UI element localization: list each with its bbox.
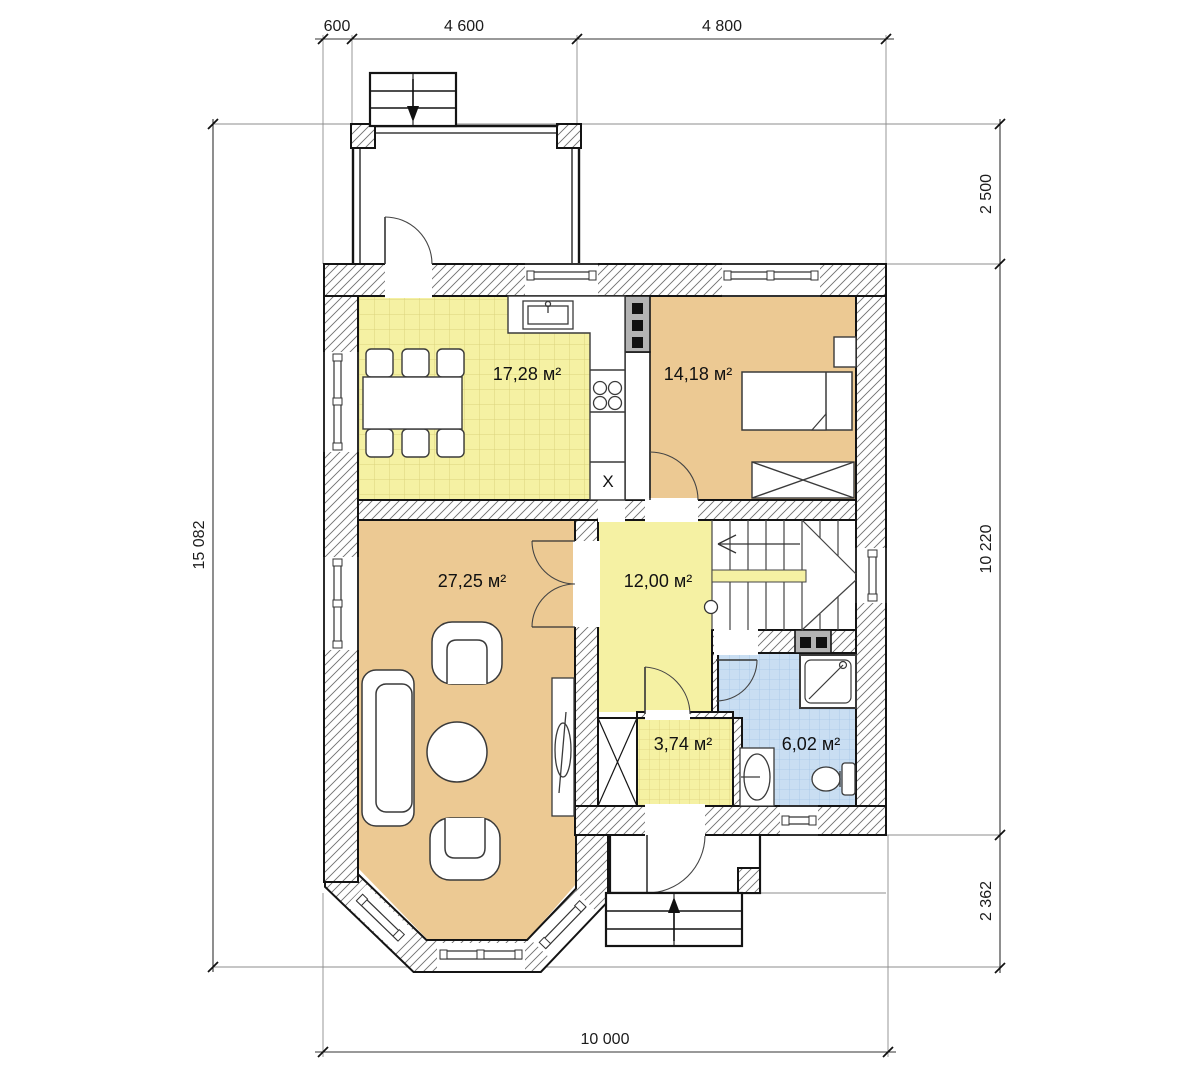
chair — [366, 429, 393, 457]
wall-bath-left — [712, 653, 718, 712]
hall-floor — [598, 520, 712, 712]
wall-kitchen-bedroom — [625, 352, 650, 500]
bathroom-area-label: 6,02 м² — [782, 734, 840, 754]
vestibule-floor — [637, 718, 733, 806]
dining-table — [363, 349, 464, 457]
kitchen-area-label: 17,28 м² — [493, 364, 561, 384]
hall-area-label: 12,00 м² — [624, 571, 692, 591]
dim-bottom-10000: 10 000 — [581, 1031, 630, 1048]
living-area-label: 27,25 м² — [438, 571, 506, 591]
wall-bottom — [575, 806, 886, 835]
dim-top-4800: 4 800 — [702, 18, 742, 35]
bedroom-area-label: 14,18 м² — [664, 364, 732, 384]
window-stairs-right — [855, 548, 887, 603]
window-kitchen-left — [323, 352, 359, 452]
sofa — [362, 670, 414, 826]
armchair-top — [432, 622, 502, 684]
vestibule-area-label: 3,74 м² — [654, 734, 712, 754]
window-kitchen-top — [525, 263, 598, 297]
chair — [366, 349, 393, 377]
wardrobe-bedroom — [752, 462, 854, 498]
newel-post — [705, 601, 718, 614]
window-bathroom-bottom — [780, 805, 818, 836]
dim-top-4600: 4 600 — [444, 18, 484, 35]
chimney-kitchen — [625, 296, 650, 352]
nightstand — [834, 337, 856, 367]
chair — [437, 349, 464, 377]
dim-left-15082: 15 082 — [191, 520, 208, 569]
opening-kitchen-hall — [598, 498, 625, 522]
tv-stand — [552, 678, 574, 816]
bed — [742, 372, 852, 430]
coffee-table — [427, 722, 487, 782]
chair — [402, 429, 429, 457]
floor-plan-svg: X — [0, 0, 1200, 1081]
shower — [800, 655, 856, 708]
window-living-left — [323, 557, 359, 650]
chimney-stairs — [795, 630, 831, 653]
chair — [402, 349, 429, 377]
floor-plan-page: X — [0, 0, 1200, 1081]
chair — [437, 429, 464, 457]
dim-right-2500: 2 500 — [978, 174, 995, 214]
dim-right-2362: 2 362 — [978, 881, 995, 921]
dim-top-600: 600 — [324, 18, 351, 35]
washbasin — [740, 748, 774, 806]
top-steps — [370, 73, 456, 126]
entrance-steps — [606, 893, 742, 946]
armchair-bottom — [430, 818, 500, 880]
window-bay-bottom — [437, 943, 525, 971]
closet — [598, 718, 637, 806]
dim-right-10220: 10 220 — [978, 524, 995, 573]
window-bedroom-top — [722, 263, 820, 297]
appliance-x-label: X — [602, 472, 613, 491]
